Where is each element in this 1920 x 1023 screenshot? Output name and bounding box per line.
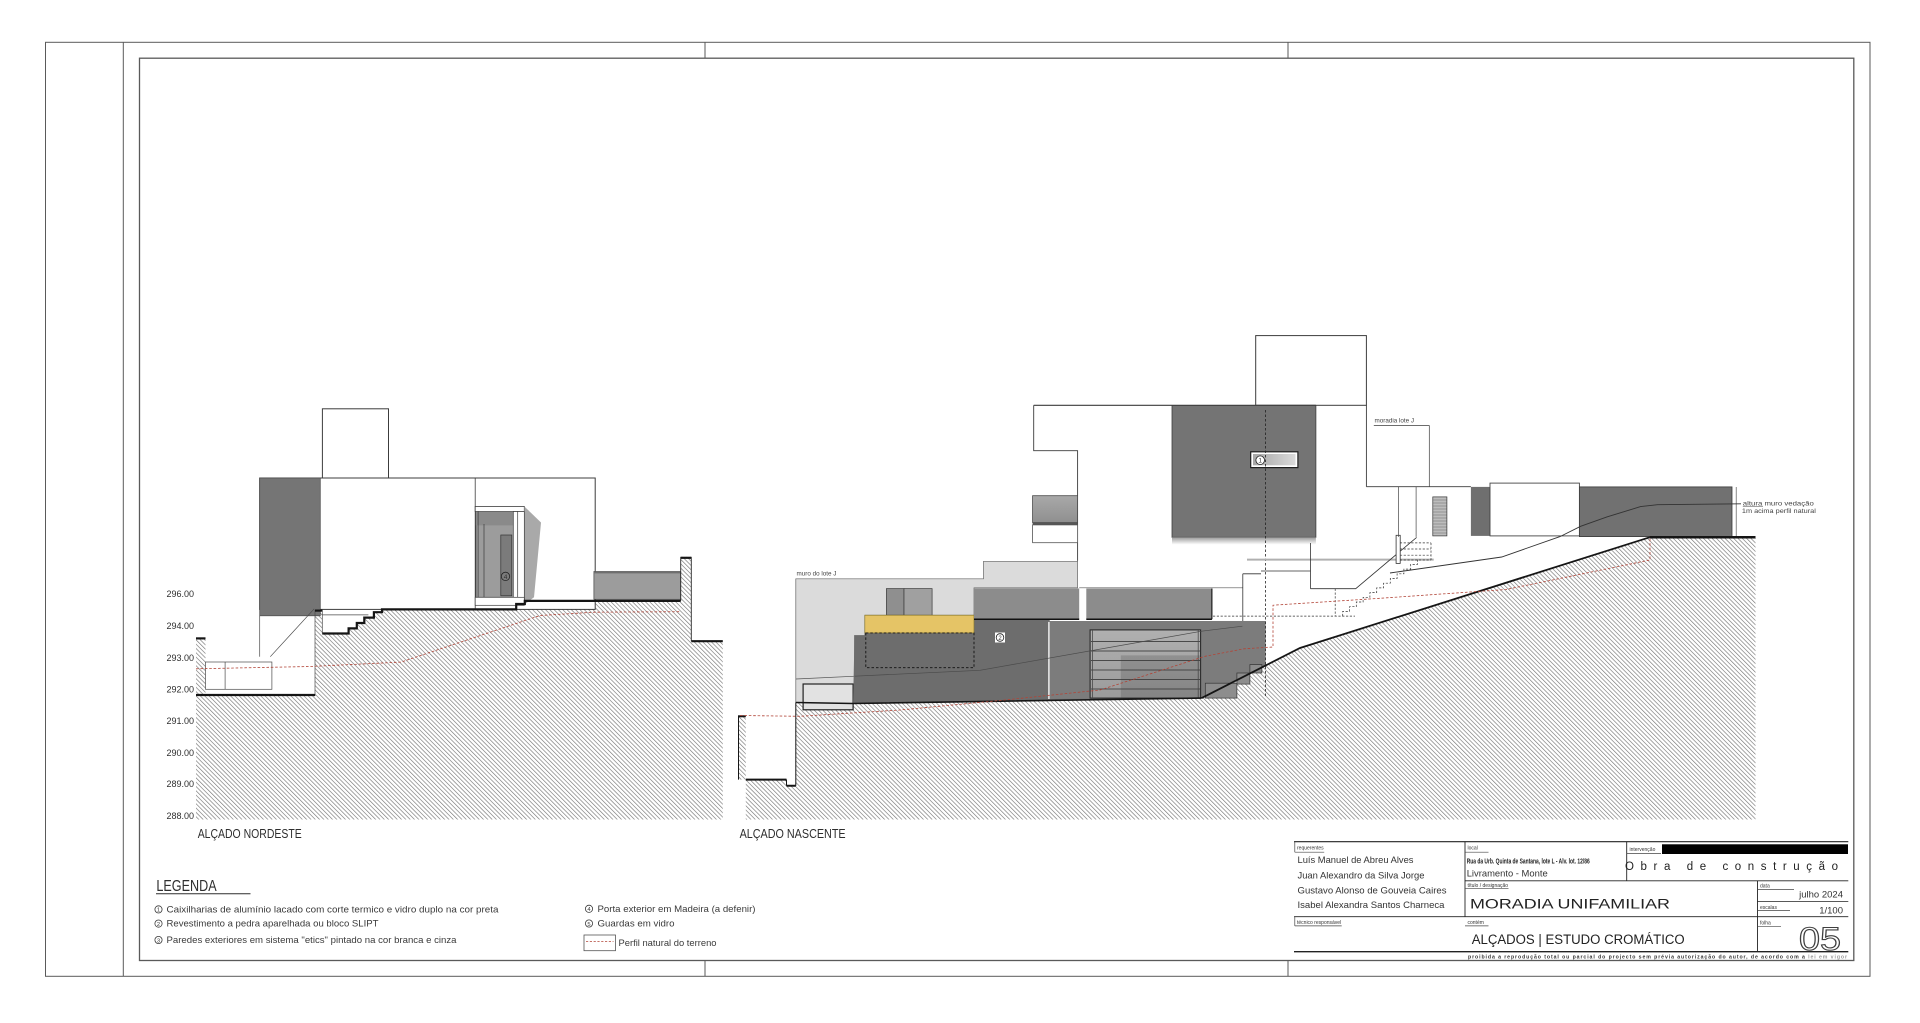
svg-text:291.00: 291.00 <box>166 716 194 726</box>
svg-text:título / designação: título / designação <box>1468 883 1509 889</box>
svg-text:1: 1 <box>1258 458 1262 465</box>
svg-text:Gustavo Alonso de Gouveia Cair: Gustavo Alonso de Gouveia Caires <box>1298 886 1447 896</box>
svg-text:moradia lote J: moradia lote J <box>1375 418 1415 425</box>
svg-text:ALÇADOS | ESTUDO CROMÁTICO: ALÇADOS | ESTUDO CROMÁTICO <box>1472 932 1685 947</box>
svg-text:local: local <box>1468 846 1478 852</box>
svg-text:289.00: 289.00 <box>166 779 194 789</box>
svg-text:ALÇADO NASCENTE: ALÇADO NASCENTE <box>740 827 846 841</box>
svg-text:Perfil natural do terreno: Perfil natural do terreno <box>619 938 717 948</box>
svg-text:Guardas em vidro: Guardas em vidro <box>598 919 675 929</box>
svg-text:Livramento - Monte: Livramento - Monte <box>1467 869 1548 880</box>
svg-text:Porta exterior em Madeira (a d: Porta exterior em Madeira (a defenir) <box>598 904 756 914</box>
svg-text:escalas: escalas <box>1760 905 1777 911</box>
svg-text:290.00: 290.00 <box>166 748 194 758</box>
svg-text:05: 05 <box>1799 921 1841 957</box>
svg-text:4: 4 <box>504 574 508 581</box>
svg-text:intervenção: intervenção <box>1630 847 1656 853</box>
svg-text:técnico responsável: técnico responsável <box>1297 920 1341 926</box>
svg-text:Luís Manuel de Abreu Alves: Luís Manuel de Abreu Alves <box>1298 855 1414 865</box>
svg-text:293.00: 293.00 <box>166 653 194 663</box>
svg-text:Rua da Urb. Quinta de Santana,: Rua da Urb. Quinta de Santana, lote L - … <box>1467 859 1590 866</box>
svg-text:296.00: 296.00 <box>166 589 194 599</box>
svg-text:contém: contém <box>1468 920 1484 926</box>
svg-text:data: data <box>1760 884 1770 890</box>
svg-text:292.00: 292.00 <box>166 685 194 695</box>
svg-text:5: 5 <box>587 922 590 928</box>
svg-text:Revestimento a pedra aparelhad: Revestimento a pedra aparelhada ou bloco… <box>167 919 379 929</box>
svg-text:1m acima perfil natural: 1m acima perfil natural <box>1742 508 1816 515</box>
svg-text:1/100: 1/100 <box>1819 906 1843 917</box>
svg-text:294.00: 294.00 <box>166 621 194 631</box>
svg-text:proibida a reprodução total ou: proibida a reprodução total ou parcial d… <box>1468 955 1847 961</box>
svg-text:Isabel Alexandra Santos Charne: Isabel Alexandra Santos Charneca <box>1298 900 1446 910</box>
svg-text:folha: folha <box>1760 921 1771 927</box>
svg-text:LEGENDA: LEGENDA <box>156 878 216 895</box>
svg-text:muro do lote J: muro do lote J <box>797 571 837 578</box>
svg-text:288.00: 288.00 <box>166 811 194 821</box>
svg-text:Juan Alexandro da Silva Jorge: Juan Alexandro da Silva Jorge <box>1298 871 1425 881</box>
svg-text:Caixilharias de alumínio lacad: Caixilharias de alumínio lacado com cort… <box>167 904 500 914</box>
svg-text:Paredes exteriores em sistema: Paredes exteriores em sistema "etics" pi… <box>167 935 458 945</box>
svg-text:3: 3 <box>157 938 160 944</box>
svg-text:2: 2 <box>157 922 160 928</box>
svg-text:requerentes: requerentes <box>1297 846 1324 852</box>
svg-text:julho 2024: julho 2024 <box>1798 890 1843 901</box>
svg-text:ALÇADO NORDESTE: ALÇADO NORDESTE <box>198 827 302 841</box>
svg-text:1: 1 <box>157 908 160 914</box>
svg-text:MORADIA UNIFAMILIAR: MORADIA UNIFAMILIAR <box>1470 897 1670 912</box>
